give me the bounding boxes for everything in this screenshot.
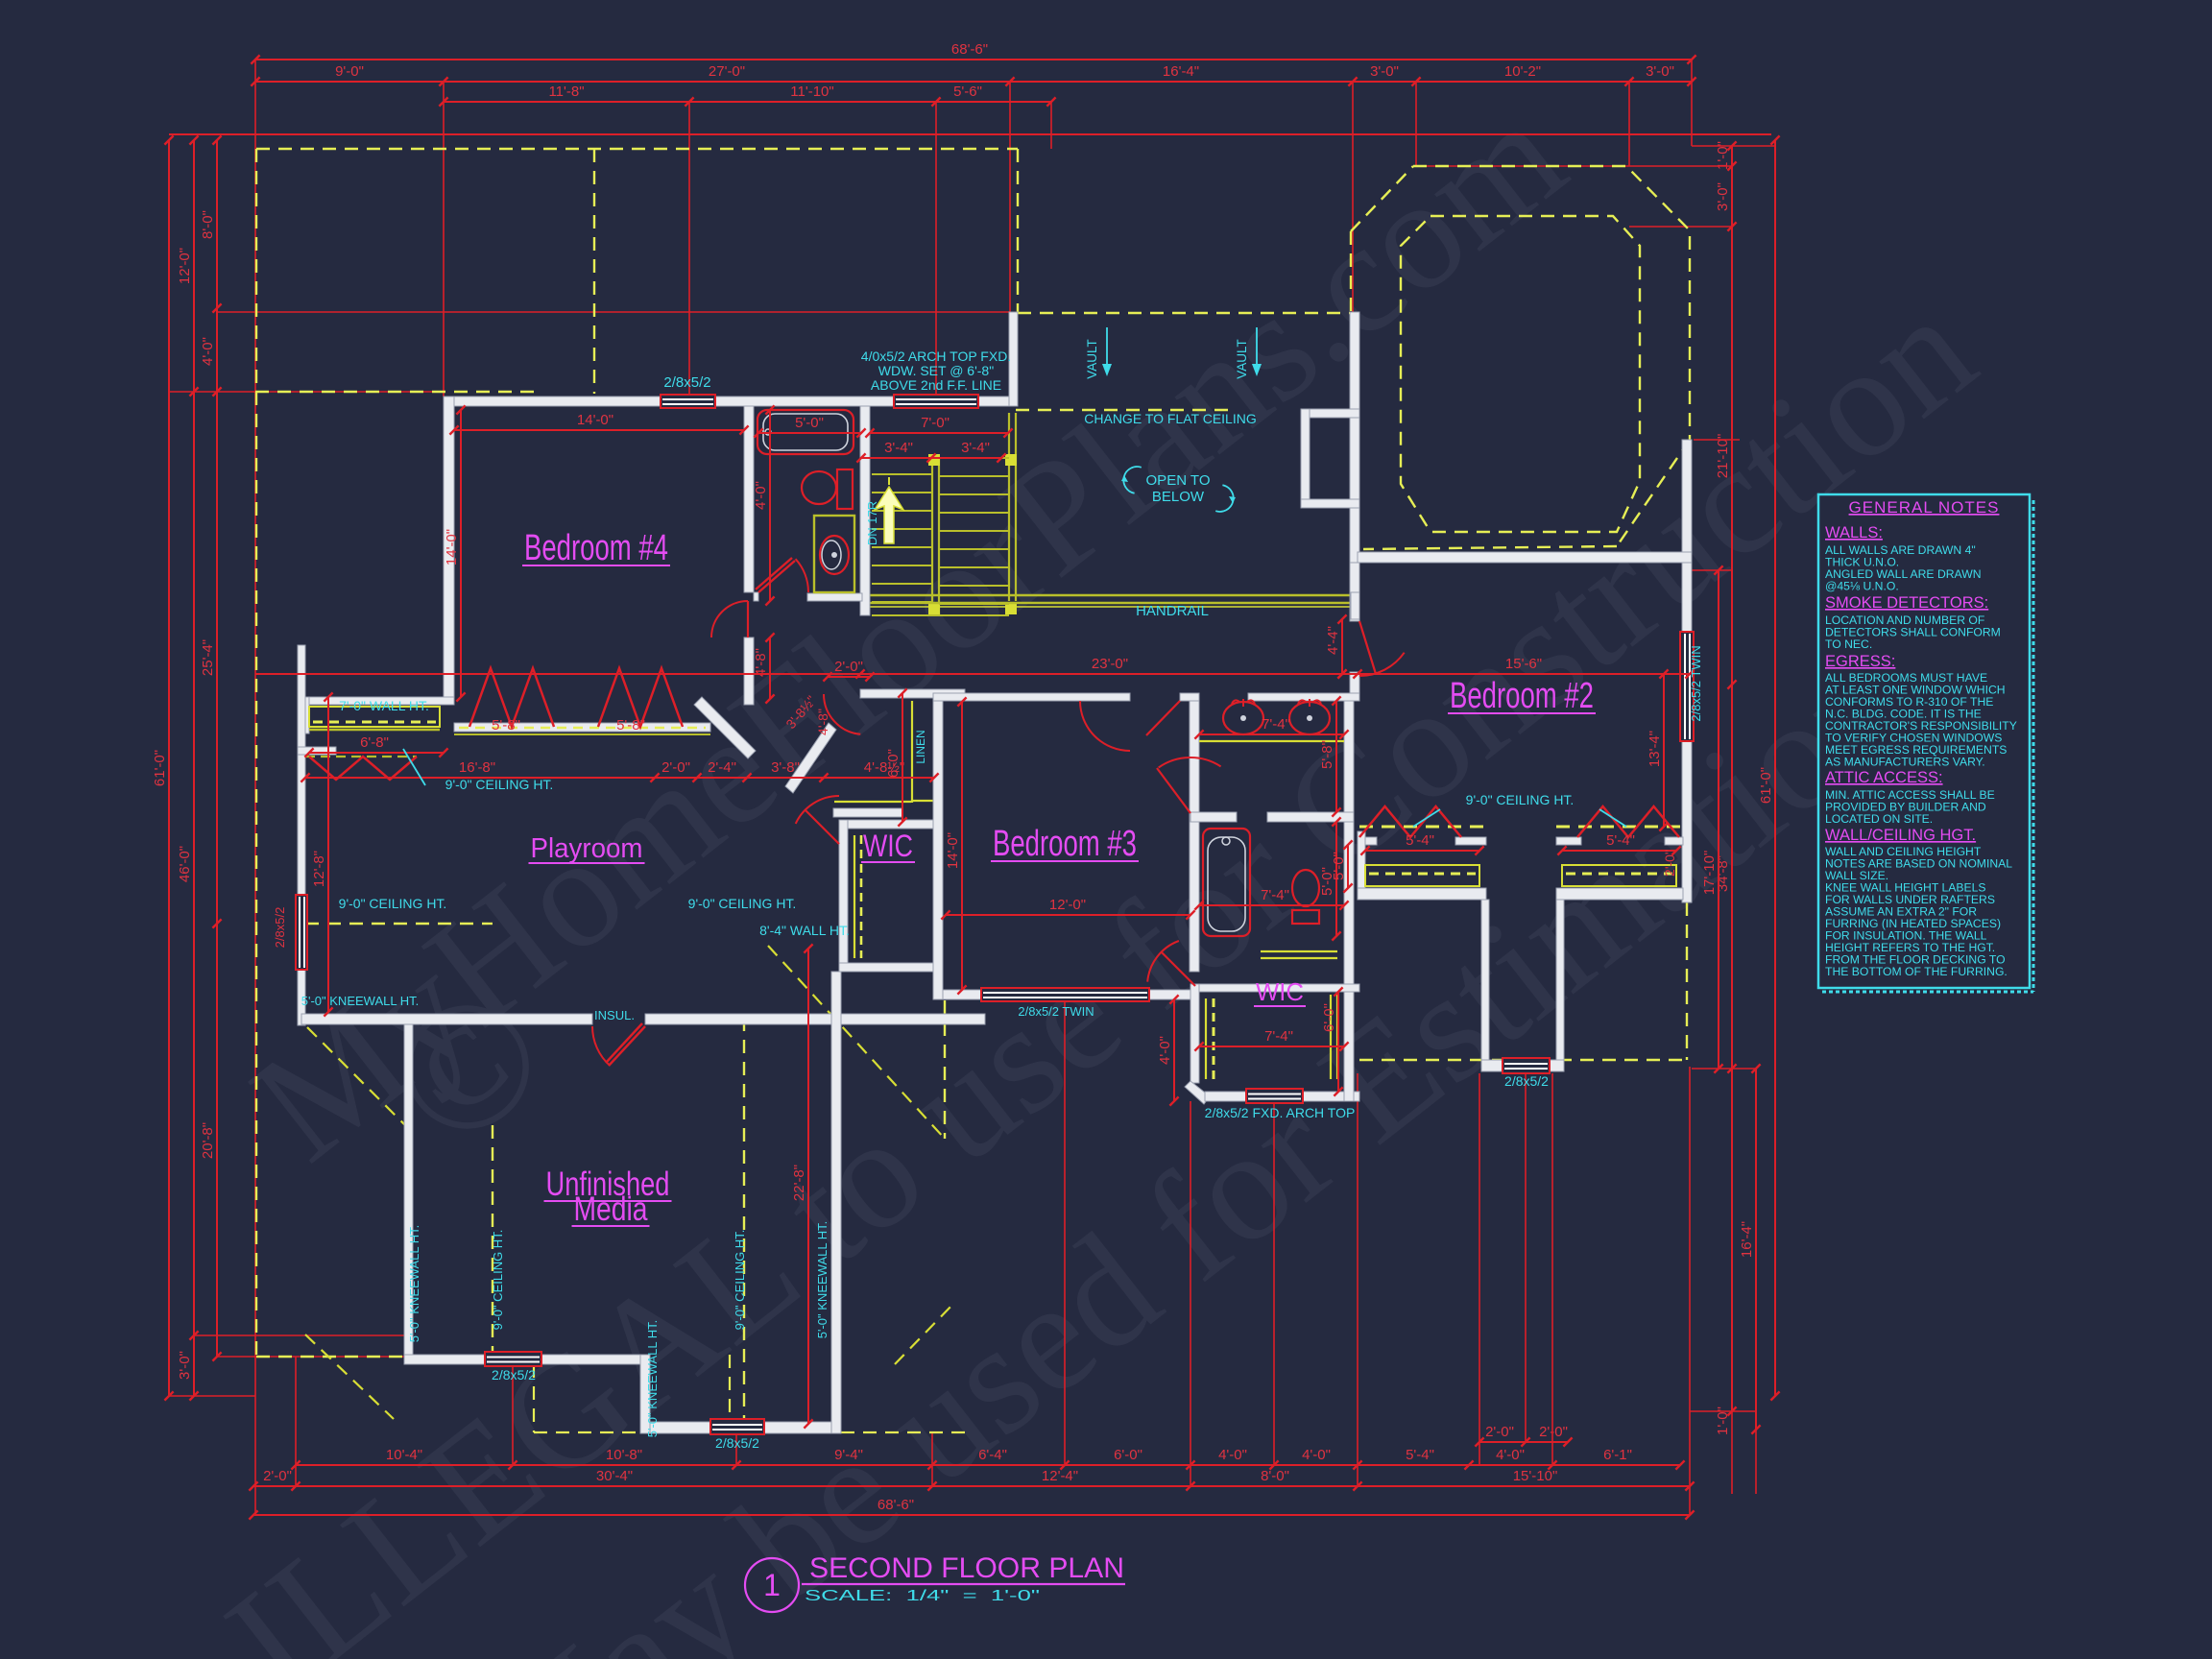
svg-text:2'-0": 2'-0" xyxy=(661,759,690,776)
svg-text:25'-4": 25'-4" xyxy=(200,639,216,676)
svg-text:2/8x5/2 FXD. ARCH TOP: 2/8x5/2 FXD. ARCH TOP xyxy=(1205,1105,1356,1120)
svg-text:68'-6": 68'-6" xyxy=(878,1497,914,1513)
svg-text:Playroom: Playroom xyxy=(531,833,643,864)
svg-text:5'-0" KNEEWALL HT.: 5'-0" KNEEWALL HT. xyxy=(815,1221,829,1338)
svg-text:4'-0": 4'-0" xyxy=(753,481,769,510)
svg-text:1: 1 xyxy=(763,1568,781,1602)
svg-text:3'-0": 3'-0" xyxy=(1715,182,1731,211)
svg-text:WALLS:: WALLS: xyxy=(1825,524,1883,541)
svg-text:9'-0" CEILING HT.: 9'-0" CEILING HT. xyxy=(339,896,447,911)
svg-text:4'-8": 4'-8" xyxy=(815,709,830,735)
svg-text:3'-8": 3'-8" xyxy=(771,759,800,776)
svg-text:2'-0": 2'-0" xyxy=(834,659,863,675)
svg-text:10'-8": 10'-8" xyxy=(606,1447,642,1463)
svg-text:6'-0": 6'-0" xyxy=(885,749,902,778)
svg-text:12'-0": 12'-0" xyxy=(1049,897,1086,913)
svg-text:CHANGE TO FLAT CEILING: CHANGE TO FLAT CEILING xyxy=(1084,411,1256,426)
svg-text:WIC: WIC xyxy=(863,829,913,863)
svg-text:2/8x5/2: 2/8x5/2 xyxy=(715,1435,759,1451)
svg-text:BELOW: BELOW xyxy=(1152,489,1205,505)
svg-text:12'-8": 12'-8" xyxy=(311,851,327,887)
svg-text:AS MANUFACTURERS VARY.: AS MANUFACTURERS VARY. xyxy=(1825,756,1985,769)
svg-text:THE BOTTOM OF THE FURRING.: THE BOTTOM OF THE FURRING. xyxy=(1825,965,2008,978)
svg-text:2/8x5/2: 2/8x5/2 xyxy=(273,907,287,949)
svg-text:12'-0": 12'-0" xyxy=(177,248,193,284)
svg-text:5'-0" KNEEWALL HT.: 5'-0" KNEEWALL HT. xyxy=(301,994,419,1008)
svg-text:4'-0": 4'-0" xyxy=(200,337,216,366)
svg-text:9'-0" CEILING HT.: 9'-0" CEILING HT. xyxy=(688,896,797,911)
svg-text:16'-4": 16'-4" xyxy=(1163,63,1199,80)
svg-text:11'-8": 11'-8" xyxy=(548,84,584,100)
svg-text:WALL/CEILING HGT.: WALL/CEILING HGT. xyxy=(1825,827,1976,844)
svg-text:2/8x5/2 TWIN: 2/8x5/2 TWIN xyxy=(1689,645,1703,721)
svg-text:LOCATED ON SITE.: LOCATED ON SITE. xyxy=(1825,812,1933,826)
svg-text:OPEN TO: OPEN TO xyxy=(1146,472,1211,489)
svg-text:Bedroom #4: Bedroom #4 xyxy=(524,528,668,568)
svg-text:4'-0": 4'-0" xyxy=(1302,1447,1331,1463)
svg-text:7'-4": 7'-4" xyxy=(1262,716,1290,733)
svg-text:4/0x5/2 ARCH TOP FXD.: 4/0x5/2 ARCH TOP FXD. xyxy=(861,349,1011,364)
svg-text:7'-4": 7'-4" xyxy=(1261,887,1289,903)
svg-text:5'-4": 5'-4" xyxy=(1606,832,1635,849)
svg-text:TO NEC.: TO NEC. xyxy=(1825,637,1872,651)
svg-text:2'-0": 2'-0" xyxy=(1662,850,1677,877)
svg-text:2'-4": 2'-4" xyxy=(708,759,736,776)
svg-text:14'-0": 14'-0" xyxy=(444,529,460,565)
svg-text:2/8x5/2: 2/8x5/2 xyxy=(663,374,710,391)
svg-text:23'-0": 23'-0" xyxy=(1092,656,1128,672)
svg-text:2/8x5/2 TWIN: 2/8x5/2 TWIN xyxy=(1018,1004,1094,1019)
svg-text:9'-4": 9'-4" xyxy=(834,1447,863,1463)
svg-text:9'-0" CEILING HT.: 9'-0" CEILING HT. xyxy=(445,777,554,792)
svg-text:ABOVE 2nd F.F. LINE: ABOVE 2nd F.F. LINE xyxy=(871,377,1001,393)
svg-text:10'-2": 10'-2" xyxy=(1504,63,1541,80)
svg-text:30'-4": 30'-4" xyxy=(596,1468,633,1484)
svg-text:WIC: WIC xyxy=(1256,977,1304,1006)
svg-text:5'-8": 5'-8" xyxy=(492,717,520,733)
svg-text:Bedroom #2: Bedroom #2 xyxy=(1450,676,1594,716)
svg-text:4'-0": 4'-0" xyxy=(1157,1036,1173,1065)
svg-text:Bedroom #3: Bedroom #3 xyxy=(993,824,1137,864)
svg-text:46'-0": 46'-0" xyxy=(177,846,193,882)
svg-text:5'-0": 5'-0" xyxy=(795,415,824,431)
svg-text:2/8x5/2: 2/8x5/2 xyxy=(1504,1073,1549,1089)
svg-text:3'-4": 3'-4" xyxy=(961,440,990,456)
svg-text:8'-4" WALL HT.: 8'-4" WALL HT. xyxy=(759,923,850,938)
svg-text:9'-0" CEILING HT.: 9'-0" CEILING HT. xyxy=(733,1230,747,1331)
svg-text:WDW. SET @ 6'-8": WDW. SET @ 6'-8" xyxy=(878,363,994,378)
svg-text:EGRESS:: EGRESS: xyxy=(1825,653,1895,670)
svg-text:2'-0": 2'-0" xyxy=(263,1468,292,1484)
svg-text:6'-4": 6'-4" xyxy=(978,1447,1007,1463)
svg-text:2/8x5/2: 2/8x5/2 xyxy=(492,1367,536,1382)
svg-text:VAULT: VAULT xyxy=(1085,339,1099,379)
svg-text:61'-0": 61'-0" xyxy=(152,750,168,786)
svg-text:SMOKE DETECTORS:: SMOKE DETECTORS: xyxy=(1825,594,1988,612)
svg-text:DN 17R: DN 17R xyxy=(865,501,879,545)
svg-text:13'-4": 13'-4" xyxy=(1647,731,1663,767)
svg-text:14'-0": 14'-0" xyxy=(945,832,961,869)
svg-text:7'-0": 7'-0" xyxy=(921,415,950,431)
svg-text:9'-0" CEILING HT.: 9'-0" CEILING HT. xyxy=(491,1230,505,1331)
svg-text:11'-10": 11'-10" xyxy=(790,84,833,100)
svg-text:10'-4": 10'-4" xyxy=(386,1447,422,1463)
svg-text:GENERAL NOTES: GENERAL NOTES xyxy=(1849,498,2000,517)
svg-text:SCALE: 1/4" = 1'-0": SCALE: 1/4" = 1'-0" xyxy=(805,1588,1040,1604)
svg-text:6'-0": 6'-0" xyxy=(1114,1447,1142,1463)
svg-text:15'-6": 15'-6" xyxy=(1505,656,1542,672)
svg-text:@45⅛ U.N.O.: @45⅛ U.N.O. xyxy=(1825,580,1899,593)
svg-text:8'-0": 8'-0" xyxy=(200,210,216,239)
svg-text:68'-6": 68'-6" xyxy=(951,41,988,58)
svg-text:3'-0": 3'-0" xyxy=(1646,63,1674,80)
svg-text:20'-8": 20'-8" xyxy=(200,1122,216,1159)
svg-text:HANDRAIL: HANDRAIL xyxy=(1136,603,1209,619)
svg-text:22'-8": 22'-8" xyxy=(791,1165,807,1201)
svg-text:9'-0": 9'-0" xyxy=(335,63,364,80)
svg-text:SECOND FLOOR PLAN: SECOND FLOOR PLAN xyxy=(809,1552,1124,1584)
svg-text:7'-0" WALL HT.: 7'-0" WALL HT. xyxy=(339,698,429,713)
svg-text:4'-8": 4'-8" xyxy=(753,648,769,677)
svg-text:7'-4": 7'-4" xyxy=(1264,1028,1293,1045)
svg-text:Media: Media xyxy=(574,1190,648,1228)
svg-text:4'-0": 4'-0" xyxy=(1218,1447,1247,1463)
svg-text:5'-8": 5'-8" xyxy=(1319,740,1335,769)
svg-text:5'-0" KNEEWALL HT.: 5'-0" KNEEWALL HT. xyxy=(407,1225,421,1342)
svg-text:ATTIC ACCESS:: ATTIC ACCESS: xyxy=(1825,769,1943,786)
svg-text:4'-0": 4'-0" xyxy=(1496,1447,1525,1463)
svg-text:6'-1": 6'-1" xyxy=(1603,1447,1632,1463)
svg-text:2'-0": 2'-0" xyxy=(1539,1424,1568,1440)
svg-text:5'-8": 5'-8" xyxy=(616,717,645,733)
svg-text:INSUL.: INSUL. xyxy=(594,1008,635,1022)
svg-text:17'-10": 17'-10" xyxy=(1701,851,1718,896)
svg-text:12'-4": 12'-4" xyxy=(1042,1468,1078,1484)
svg-text:15'-10": 15'-10" xyxy=(1513,1468,1558,1484)
svg-text:5'-0": 5'-0" xyxy=(1331,852,1347,880)
svg-text:8'-0": 8'-0" xyxy=(1261,1468,1289,1484)
svg-text:14'-0": 14'-0" xyxy=(577,412,613,428)
svg-text:3'-4": 3'-4" xyxy=(884,440,913,456)
svg-text:6'-0": 6'-0" xyxy=(1321,1003,1337,1032)
svg-text:LINEN: LINEN xyxy=(914,730,927,763)
svg-text:3'-0": 3'-0" xyxy=(177,1351,193,1380)
svg-text:16'-4": 16'-4" xyxy=(1739,1221,1755,1258)
svg-text:5'-4": 5'-4" xyxy=(1406,832,1434,849)
svg-text:5'-0" KNEEWALL HT.: 5'-0" KNEEWALL HT. xyxy=(645,1320,660,1437)
svg-text:27'-0": 27'-0" xyxy=(709,63,745,80)
svg-text:5'-4": 5'-4" xyxy=(1406,1447,1434,1463)
svg-text:5'-6": 5'-6" xyxy=(953,84,982,100)
svg-text:3'-0": 3'-0" xyxy=(1370,63,1399,80)
svg-text:2'-0": 2'-0" xyxy=(1485,1424,1514,1440)
svg-text:16'-8": 16'-8" xyxy=(459,759,495,776)
svg-text:9'-0" CEILING HT.: 9'-0" CEILING HT. xyxy=(1466,792,1575,807)
svg-text:61'-0": 61'-0" xyxy=(1758,767,1774,804)
svg-text:6'-8": 6'-8" xyxy=(360,734,389,751)
svg-text:VAULT: VAULT xyxy=(1235,339,1249,379)
svg-text:4'-4": 4'-4" xyxy=(1325,626,1341,655)
